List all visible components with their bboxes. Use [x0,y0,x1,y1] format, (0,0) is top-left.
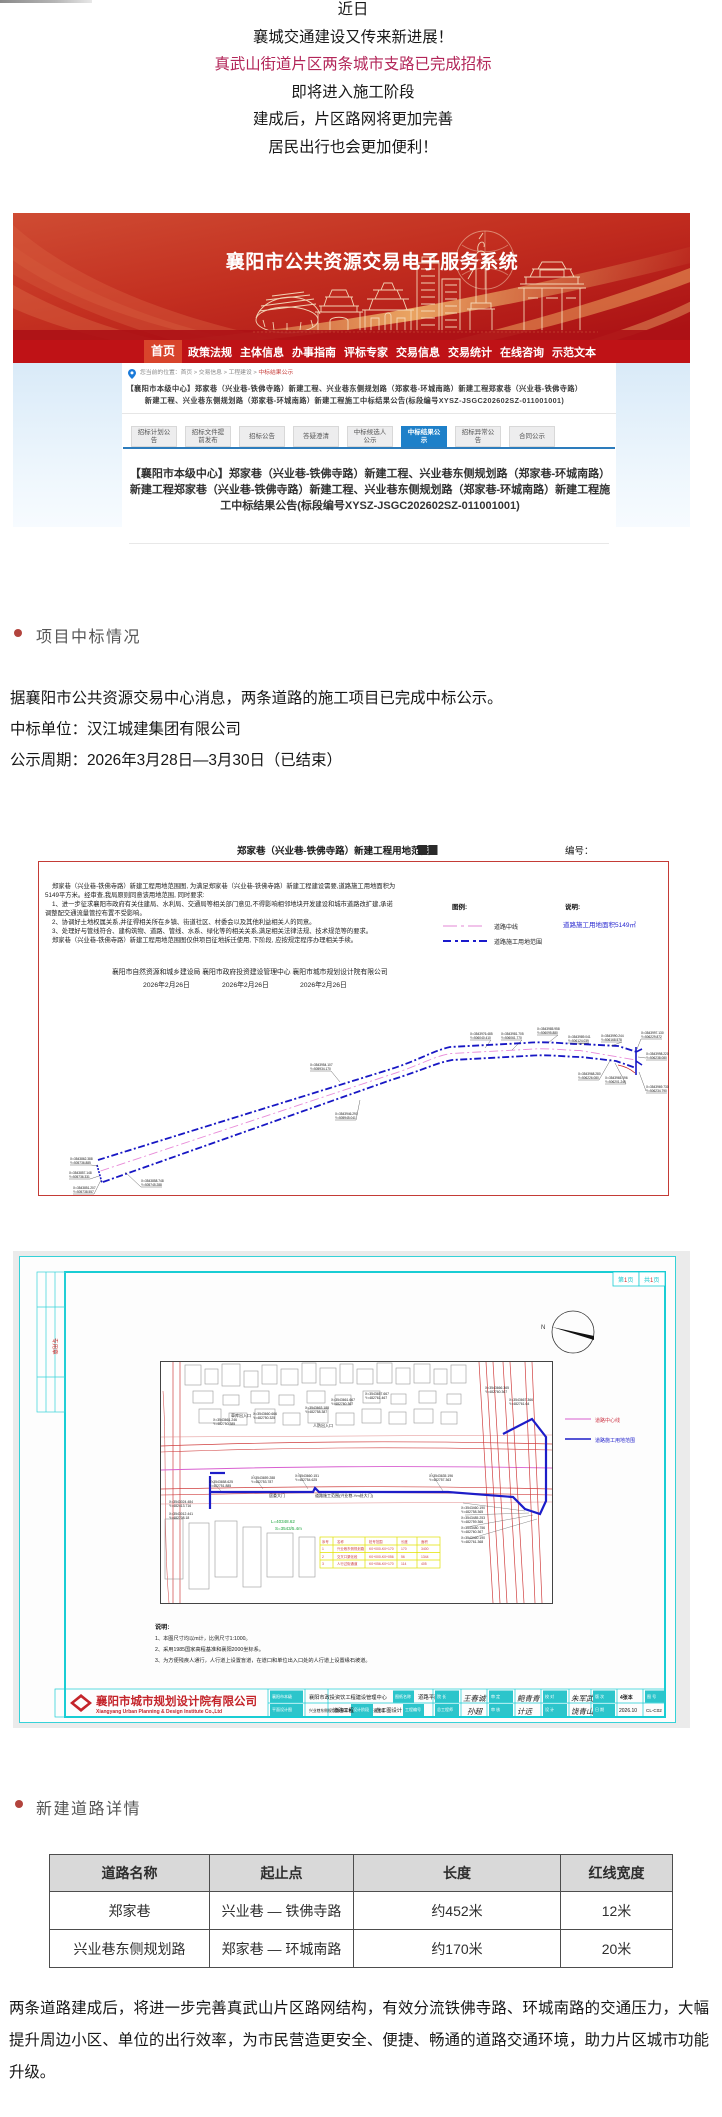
svg-text:襄阳市公共资源交易电子服务系统: 襄阳市公共资源交易电子服务系统 [225,250,519,273]
svg-text:版 次: 版 次 [595,1693,604,1699]
svg-text:Y=482760.367: Y=482760.367 [485,1390,507,1394]
svg-text:说明:: 说明: [565,902,580,911]
svg-text:平面设计图: 平面设计图 [272,1706,292,1712]
svg-text:图纸名称: 图纸名称 [395,1693,411,1699]
svg-text:Y=482760.367: Y=482760.367 [461,1530,483,1534]
svg-text:3、为方便残疾人通行，人行道上设置盲道，在道口和单位出入口处: 3、为方便残疾人通行，人行道上设置盲道，在道口和单位出入口处的人行道上设置缘石坡… [155,1656,371,1664]
svg-text:Y=482750.385: Y=482750.385 [213,1422,235,1426]
svg-text:郑家巷（兴业巷-铁佛寺路）新建工程用地范围: 郑家巷（兴业巷-铁佛寺路）新建工程用地范围 [237,845,430,857]
svg-text:Y=482751.885: Y=482751.885 [209,1484,231,1488]
svg-text:郑家巷（兴业巷-铁佛寺路）新建工程用地范围图仅供项目征地拆迁: 郑家巷（兴业巷-铁佛寺路）新建工程用地范围图仅供项目征地拆迁使用, 下阶段, 应… [52,935,357,944]
svg-text:S=3543/5.4m: S=3543/5.4m [275,1526,302,1531]
svg-text:Y=506229.872: Y=506229.872 [641,1035,662,1039]
svg-text:长度: 长度 [401,1539,408,1544]
svg-text:道路施工用地面积5149㎡: 道路施工用地面积5149㎡ [563,920,636,929]
svg-text:审 定: 审 定 [491,1693,500,1699]
svg-text:王春诚: 王春诚 [463,1694,487,1703]
svg-text:Y=506238.080: Y=506238.080 [646,1056,667,1060]
svg-text:N: N [541,1325,545,1331]
svg-text:道路施工范围(兴业巷-Ym处大门): 道路施工范围(兴业巷-Ym处大门) [315,1492,374,1498]
svg-text:405: 405 [421,1562,427,1566]
svg-text:设 计: 设 计 [545,1706,554,1712]
svg-text:K0+000-K0+056: K0+000-K0+056 [369,1555,394,1559]
svg-text:图 号: 图 号 [647,1693,656,1699]
svg-text:图例:: 图例: [452,902,467,911]
svg-text:说明:: 说明: [155,1623,169,1631]
svg-text:L=40348.62: L=40348.62 [271,1519,295,1524]
svg-text:襄阳市政投资饮工程建设管理中心: 襄阳市政投资饮工程建设管理中心 [309,1693,387,1701]
svg-text:2026年2月26日: 2026年2月26日 [143,980,190,989]
svg-text:Y=482757.363: Y=482757.363 [429,1478,451,1482]
svg-text:Y=482758.365: Y=482758.365 [461,1510,483,1514]
svg-text:院 长: 院 长 [437,1693,446,1699]
svg-text:孙超: 孙超 [467,1707,483,1716]
svg-text:Y=482761.467: Y=482761.467 [365,1396,387,1400]
svg-text:襄阳市城市规划设计院有限公司: 襄阳市城市规划设计院有限公司 [95,1694,257,1708]
svg-text:日 期: 日 期 [595,1706,604,1712]
svg-text:计远: 计远 [517,1707,533,1716]
svg-text:1、进一步征求襄阳市政府有关住建局、水利局、交通局等相关部门: 1、进一步征求襄阳市政府有关住建局、水利局、交通局等相关部门意见,不得影响相邻地… [52,899,393,908]
svg-text:Y=505738.557: Y=505738.557 [73,1190,94,1194]
svg-text:Xiangyang Urban Planning & Des: Xiangyang Urban Planning & Design Instit… [96,1709,222,1715]
svg-text:饶青山: 饶青山 [571,1707,594,1716]
svg-text:道路中心线: 道路中心线 [595,1417,620,1424]
svg-text:3、处理好与管线符合、建构筑物、道路、管线、水系、绿化等的相: 3、处理好与管线符合、建构筑物、道路、管线、水系、绿化等的相关关系,满足相关法律… [52,926,372,935]
svg-text:交叉口渠化段: 交叉口渠化段 [337,1554,358,1559]
svg-text:Y=505736.885: Y=505736.885 [70,1161,91,1165]
svg-text:Y=505745.288: Y=505745.288 [141,1183,162,1187]
svg-text:居委大门: 居委大门 [269,1492,285,1498]
svg-text:审 核: 审 核 [491,1706,500,1712]
svg-text:114: 114 [401,1562,407,1566]
svg-text:襄阳市自然资源和城乡建设局 襄阳市政府投资建设管理中心: 襄阳市自然资源和城乡建设局 襄阳市政府投资建设管理中心 襄阳市城市规划设计院有限… [112,967,388,976]
svg-text:调整配交通流量管控布置不受影响。: 调整配交通流量管控布置不受影响。 [45,908,146,917]
svg-text:CL-C02: CL-C02 [646,1708,662,1713]
svg-text:编号：: 编号： [565,845,594,857]
svg-text:2: 2 [322,1555,324,1559]
svg-text:道路施工用地范围: 道路施工用地范围 [494,938,542,946]
svg-text:2、采用1985国家高程基准和襄阳2000坐标系。: 2、采用1985国家高程基准和襄阳2000坐标系。 [155,1645,264,1653]
svg-text:Y=506124.039: Y=506124.039 [568,1039,589,1043]
svg-text:Y=482750.325: Y=482750.325 [253,1416,275,1420]
svg-text:車库出入口: 車库出入口 [231,1412,251,1418]
svg-text:工程编号: 工程编号 [405,1706,421,1712]
svg-text:鲍青青: 鲍青青 [517,1694,541,1703]
svg-text:Y=505736.331: Y=505736.331 [69,1175,90,1179]
svg-text:朱军武: 朱军武 [571,1694,595,1703]
svg-text:2026年2月26日: 2026年2月26日 [300,980,347,989]
svg-text:Y=505945.041: Y=505945.041 [335,1116,356,1120]
svg-text:校 对: 校 对 [545,1693,554,1699]
svg-text:2026.10: 2026.10 [619,1708,637,1714]
svg-text:第1页: 第1页 [618,1276,633,1284]
svg-text:Y=482753.787: Y=482753.787 [251,1480,273,1484]
svg-text:Y=482413.716: Y=482413.716 [169,1504,191,1508]
svg-text:设计阶段: 设计阶段 [353,1706,369,1712]
svg-text:桩号范围: 桩号范围 [369,1539,383,1544]
svg-text:Y=482754.625: Y=482754.625 [295,1478,317,1482]
svg-text:人防出入口: 人防出入口 [313,1422,333,1428]
svg-text:Y=482708.18: Y=482708.18 [169,1516,189,1520]
svg-text:1、本图尺寸均以m计，比例尺寸1:1000。: 1、本图尺寸均以m计，比例尺寸1:1000。 [155,1634,251,1642]
svg-text:道路施工用地范围: 道路施工用地范围 [595,1437,635,1444]
svg-text:Y=506040.410: Y=506040.410 [470,1036,491,1040]
svg-text:170: 170 [401,1547,407,1551]
svg-text:道路中线: 道路中线 [494,923,518,931]
svg-text:Y=482758.387: Y=482758.387 [305,1410,327,1414]
svg-text:Y=506061.770: Y=506061.770 [501,1036,522,1040]
svg-text:4张本: 4张本 [620,1694,634,1701]
svg-text:Y=505934.170: Y=505934.170 [310,1067,331,1071]
svg-text:总工程师: 总工程师 [437,1706,453,1712]
svg-text:2、协调好土地权属关系,并征得相关所在乡镇、街道社区、村委会: 2、协调好土地权属关系,并征得相关所在乡镇、街道社区、村委会以及其他利益相关人的… [52,917,315,926]
svg-text:专用章: 专用章 [51,1338,59,1355]
svg-text:5149平方米。经审查,我局原则同意该用地范围, 同时要求:: 5149平方米。经审查,我局原则同意该用地范围, 同时要求: [45,890,205,899]
svg-text:Y=506168.578: Y=506168.578 [601,1038,622,1042]
svg-text:3400: 3400 [421,1547,429,1551]
svg-text:序号: 序号 [322,1539,329,1544]
svg-text:Y=482759.366: Y=482759.366 [461,1520,483,1524]
svg-text:共1页: 共1页 [644,1276,659,1284]
svg-text:Y=506234.790: Y=506234.790 [646,1089,667,1093]
svg-text:郑家巷（兴业巷-铁佛寺路）新建工程用地范围图, 为满足郑家巷: 郑家巷（兴业巷-铁佛寺路）新建工程用地范围图, 为满足郑家巷（兴业巷-铁佛寺路）… [52,881,395,890]
svg-text:面积: 面积 [421,1539,428,1544]
svg-text:2026年2月26日: 2026年2月26日 [222,980,269,989]
svg-text:名称: 名称 [337,1539,344,1544]
svg-text:人行过街通道: 人行过街通道 [337,1561,358,1566]
svg-text:1: 1 [322,1547,324,1551]
svg-text:Y=482760.367: Y=482760.367 [331,1402,353,1406]
svg-text:3: 3 [322,1562,324,1566]
svg-text:兴业巷东侧规划路: 兴业巷东侧规划路 [337,1546,365,1551]
svg-text:K0+056-K0+170: K0+056-K0+170 [369,1562,394,1566]
svg-text:K0+000-K0+170: K0+000-K0+170 [369,1547,394,1551]
svg-text:施工图设计: 施工图设计 [376,1706,402,1714]
svg-text:1344: 1344 [421,1555,429,1559]
svg-text:道路工程: 道路工程 [333,1706,354,1714]
svg-text:Y=482761.368: Y=482761.368 [461,1540,483,1544]
svg-text:56: 56 [401,1555,405,1559]
svg-text:Y=506201.240: Y=506201.240 [605,1080,626,1084]
svg-text:Y=482761.64: Y=482761.64 [509,1402,529,1406]
svg-text:Y=506226.080: Y=506226.080 [578,1076,599,1080]
svg-text:襄阳市本级: 襄阳市本级 [272,1693,292,1699]
svg-text:Y=506095.880: Y=506095.880 [537,1031,558,1035]
